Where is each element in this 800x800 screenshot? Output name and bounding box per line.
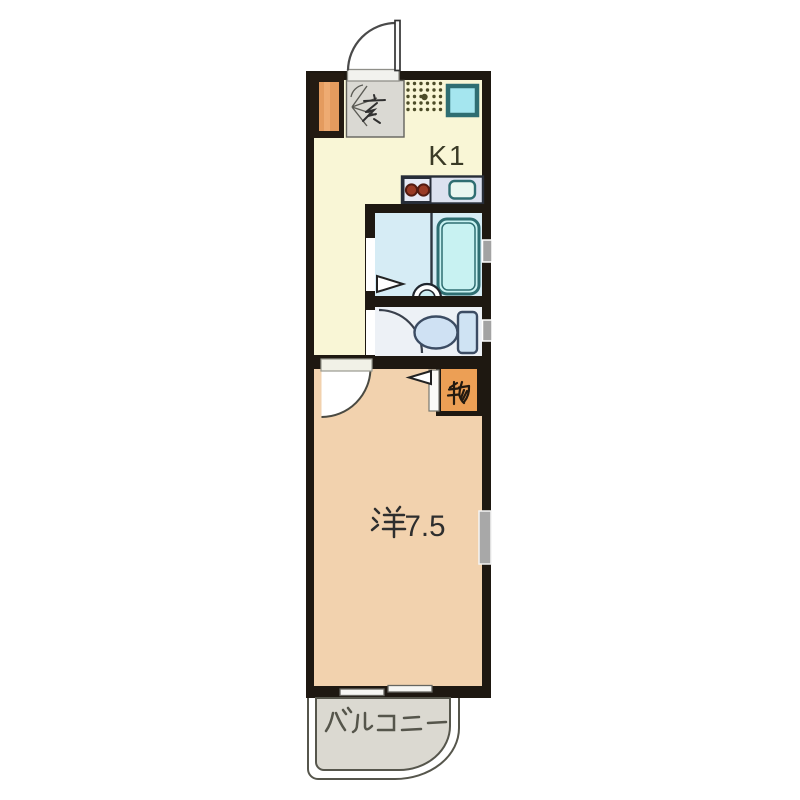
- svg-text:K1: K1: [428, 140, 466, 171]
- svg-text:7.5: 7.5: [405, 510, 446, 543]
